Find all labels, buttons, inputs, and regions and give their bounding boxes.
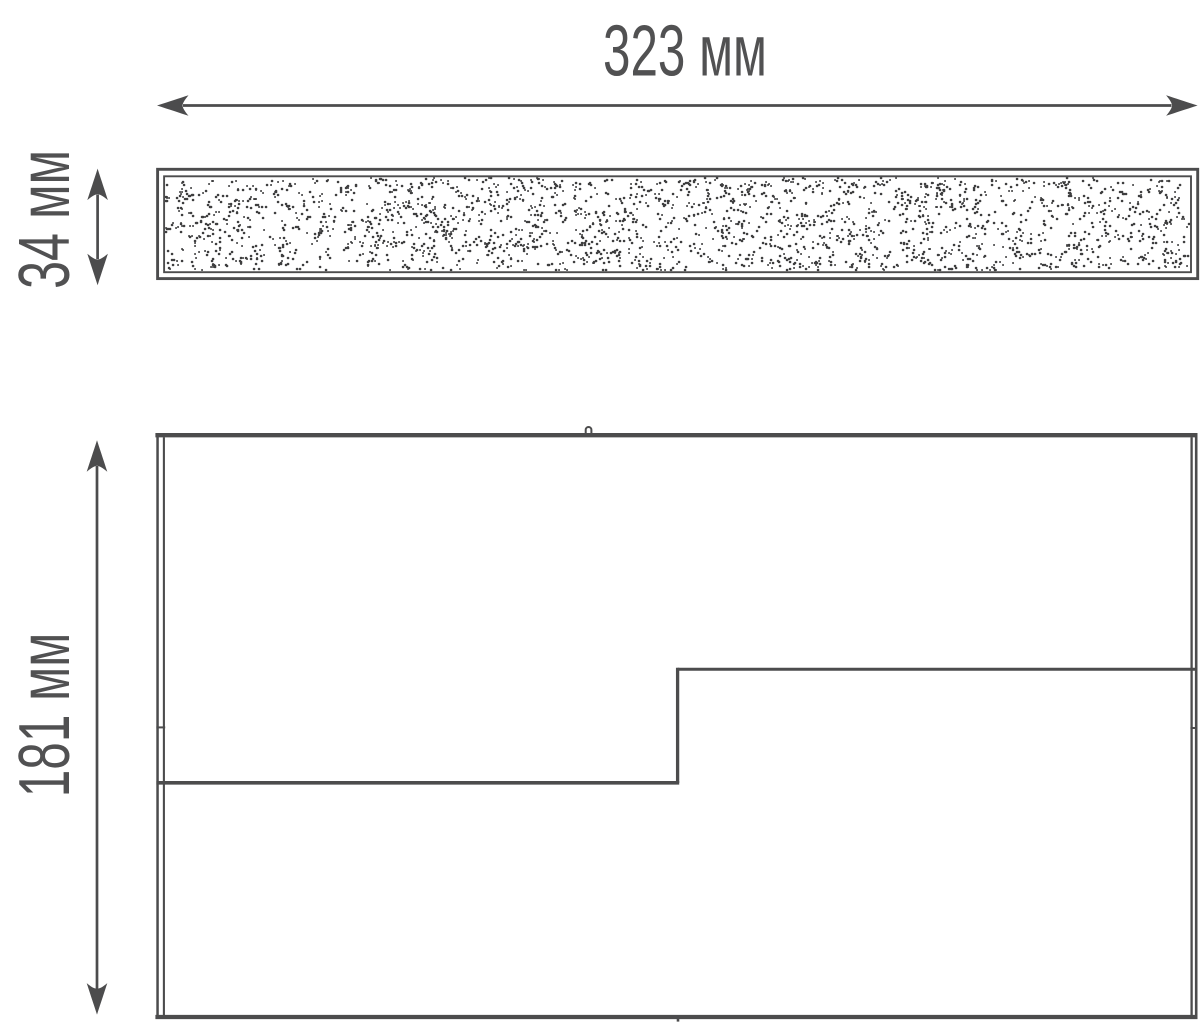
svg-text:181 мм: 181 мм: [5, 633, 85, 798]
svg-text:34 мм: 34 мм: [5, 150, 85, 289]
svg-text:323 мм: 323 мм: [603, 12, 767, 92]
